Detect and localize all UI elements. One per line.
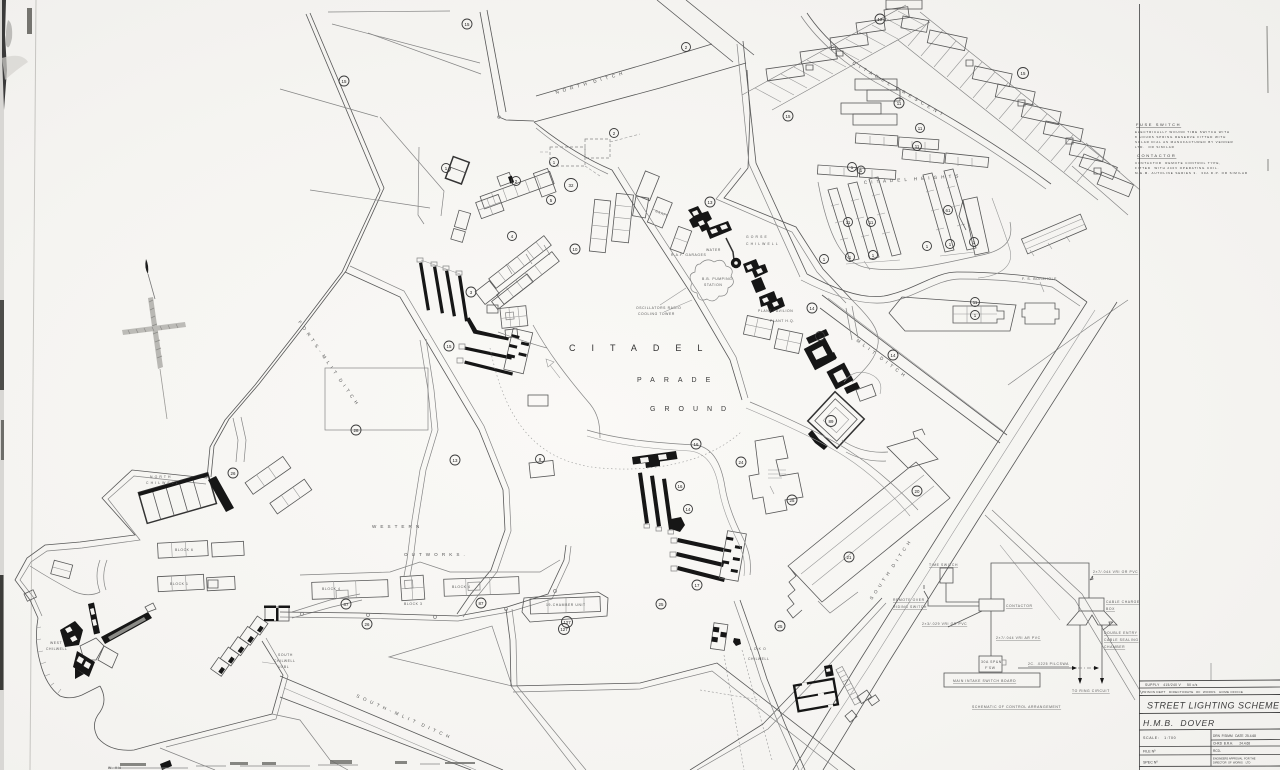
svg-text:10: 10 [573,247,578,252]
svg-text:89: 89 [829,419,834,424]
svg-text:25: 25 [790,498,795,503]
svg-text:24: 24 [739,460,744,465]
svg-text:CONTACTOR: CONTACTOR [1006,604,1033,608]
svg-text:13: 13 [453,458,458,463]
svg-text:OSCILLATORS RADIO: OSCILLATORS RADIO [636,306,681,310]
svg-text:26: 26 [231,471,236,476]
svg-text:F. S. BOREHOLE: F. S. BOREHOLE [1022,277,1057,281]
svg-text:11: 11 [915,144,920,149]
svg-text:SPEC Nº: SPEC Nº [1143,761,1158,765]
svg-text:G O R S E: G O R S E [746,235,768,239]
svg-text:25: 25 [778,624,783,629]
svg-text:CABLE SEALING: CABLE SEALING [1104,638,1139,642]
svg-text:20: 20 [915,489,920,494]
svg-text:GROUND: GROUND [650,406,735,413]
svg-text:25: 25 [659,602,664,607]
svg-text:32: 32 [569,183,574,188]
svg-text:UXBL: UXBL [278,665,289,669]
svg-text:TO RING CIRCUIT: TO RING CIRCUIT [1072,689,1110,693]
svg-text:BLOCK 4: BLOCK 4 [452,585,471,589]
svg-text:15: 15 [465,22,470,27]
svg-text:R.A.F. GARAGES: R.A.F. GARAGES [671,253,706,257]
svg-text:STREET LIGHTING SCHEME: STREET LIGHTING SCHEME [1147,701,1280,711]
svg-text:15: 15 [786,114,791,119]
svg-text:ENGINEERS APPROVAL FOR THE: ENGINEERS APPROVAL FOR THE [1213,757,1256,761]
svg-text:11: 11 [918,126,923,131]
svg-text:STATION: STATION [704,283,722,287]
svg-text:CHILWELL: CHILWELL [748,657,770,661]
svg-text:SCHEMATIC OF CONTROL ARRANGEME: SCHEMATIC OF CONTROL ARRANGEMENT [972,705,1061,709]
svg-text:CHKD B.R.H. 24.4.68: CHKD B.R.H. 24.4.68 [1213,742,1250,746]
svg-text:SUPPLY 415/240 V 50 c/s: SUPPLY 415/240 V 50 c/s [1145,683,1198,687]
svg-text:W E S T E R N: W E S T E R N [372,524,421,529]
svg-text:87: 87 [344,602,349,607]
svg-text:CONTACTOR: CONTACTOR [1137,153,1176,158]
svg-text:14: 14 [891,353,896,358]
svg-text:127: 127 [560,627,568,632]
svg-text:16: 16 [694,442,699,447]
svg-text:2C. .0225 PILCSWA: 2C. .0225 PILCSWA [1028,662,1069,666]
svg-text:2×7/.044 VRI OR PVC: 2×7/.044 VRI OR PVC [1093,570,1138,574]
svg-text:15: 15 [1021,71,1026,76]
svg-text:14: 14 [686,507,691,512]
svg-text:RIDING SWITCH: RIDING SWITCH [893,605,927,609]
svg-text:DOUBLE ENTRY: DOUBLE ENTRY [1104,631,1138,635]
svg-text:15: 15 [447,344,452,349]
svg-text:C H I L W E L L: C H I L W E L L [146,481,178,485]
svg-text:11: 11 [846,220,851,225]
svg-text:WEST: WEST [50,641,62,645]
svg-text:CHAMBER: CHAMBER [1104,645,1125,649]
svg-text:28: 28 [354,428,359,433]
svg-text:SOUTH: SOUTH [278,653,293,657]
svg-text:H.M.B. DOVER: H.M.B. DOVER [1143,718,1215,728]
svg-text:F'SW: F'SW [985,666,996,670]
svg-text:COOLING TOWER: COOLING TOWER [638,312,675,316]
svg-text:PRISON DEPT DIRECTORATE OF: PRISON DEPT DIRECTORATE OF WORKS HOME OF… [1142,690,1243,694]
svg-text:O U T W O R K S .: O U T W O R K S . [404,552,466,557]
svg-text:PLANT PAVILION: PLANT PAVILION [758,309,793,313]
svg-text:8 HOURS SPRING RESERVE FITTED: 8 HOURS SPRING RESERVE FITTED WITH [1135,135,1226,139]
svg-text:2×3/.029 VRI OR PVC: 2×3/.029 VRI OR PVC [922,622,967,626]
svg-text:CABLE CHARGE: CABLE CHARGE [1106,600,1140,604]
svg-text:12: 12 [878,17,883,22]
svg-text:REMOTE OVER: REMOTE OVER [893,598,925,602]
svg-text:BLOCK 1: BLOCK 1 [170,582,189,586]
svg-text:TIME SWITCH: TIME SWITCH [929,563,958,567]
svg-text:14: 14 [810,306,815,311]
svg-text:ELECTRICALLY WOUND TIME SWITCH: ELECTRICALLY WOUND TIME SWITCH WITH [1135,130,1230,134]
svg-text:FITTED WITH 240V OPERATING CO: FITTED WITH 240V OPERATING COIL. [1135,166,1219,170]
svg-text:LTD. OR SIMILAR: LTD. OR SIMILAR [1135,145,1175,149]
svg-text:M.E.M. AUTOLINE SERIES 3. 30A: M.E.M. AUTOLINE SERIES 3. 30A D.P. OR SI… [1135,171,1248,175]
svg-text:W. Hld: W. Hld [108,766,122,770]
svg-text:BLOCK 6: BLOCK 6 [175,548,194,552]
svg-text:CHILWELL: CHILWELL [46,647,68,651]
svg-text:30A SP&N: 30A SP&N [981,660,1002,664]
svg-text:61: 61 [946,208,951,213]
svg-text:RCD-: RCD- [1213,749,1221,753]
svg-text:FILE Nº: FILE Nº [1143,750,1156,754]
svg-text:2×7/.044 VRI AR PVC: 2×7/.044 VRI AR PVC [996,636,1041,640]
svg-text:11: 11 [897,101,902,106]
svg-text:SCALE: 1:700: SCALE: 1:700 [1143,736,1176,740]
svg-text:CHILWELL: CHILWELL [274,659,296,663]
svg-text:87: 87 [479,601,484,606]
svg-text:21: 21 [847,555,852,560]
svg-text:N O R T H: N O R T H [150,475,171,479]
svg-text:11: 11 [973,300,978,305]
svg-text:BLOCK 4: BLOCK 4 [322,587,341,591]
svg-text:13: 13 [708,200,713,205]
svg-text:11: 11 [869,220,874,225]
svg-text:17: 17 [695,583,700,588]
svg-text:19-CHAMBER UNIT: 19-CHAMBER UNIT [546,603,586,607]
svg-text:BOX: BOX [1106,607,1115,611]
svg-text:SOLAR DIAL AS MANUFACTURED BY: SOLAR DIAL AS MANUFACTURED BY VENNER [1135,140,1234,144]
svg-text:PARADE: PARADE [637,377,719,384]
svg-text:15: 15 [342,79,347,84]
svg-text:WATER: WATER [706,248,721,252]
svg-text:BLOCK 3: BLOCK 3 [404,602,423,606]
svg-text:B.B. PUMPING: B.B. PUMPING [702,277,732,281]
svg-text:CITADEL: CITADEL [569,343,718,353]
svg-text:DIRECTOR OF WORKS LTD: DIRECTOR OF WORKS LTD [1213,761,1250,765]
svg-text:26: 26 [365,622,370,627]
svg-text:FUSE SWITCH: FUSE SWITCH [1136,122,1181,127]
svg-text:PLANT H.Q.: PLANT H.Q. [770,319,795,323]
svg-text:CONTACTOR REMOTE CONTROL TYPE: CONTACTOR REMOTE CONTROL TYPE, [1135,161,1221,165]
svg-text:C H I L W E L L: C H I L W E L L [746,242,778,246]
svg-text:DRN P.SIMM DATE 25.4.68: DRN P.SIMM DATE 25.4.68 [1213,734,1256,738]
svg-text:16: 16 [678,484,683,489]
svg-text:MAIN INTAKE SWITCH BOARD: MAIN INTAKE SWITCH BOARD [953,679,1016,683]
